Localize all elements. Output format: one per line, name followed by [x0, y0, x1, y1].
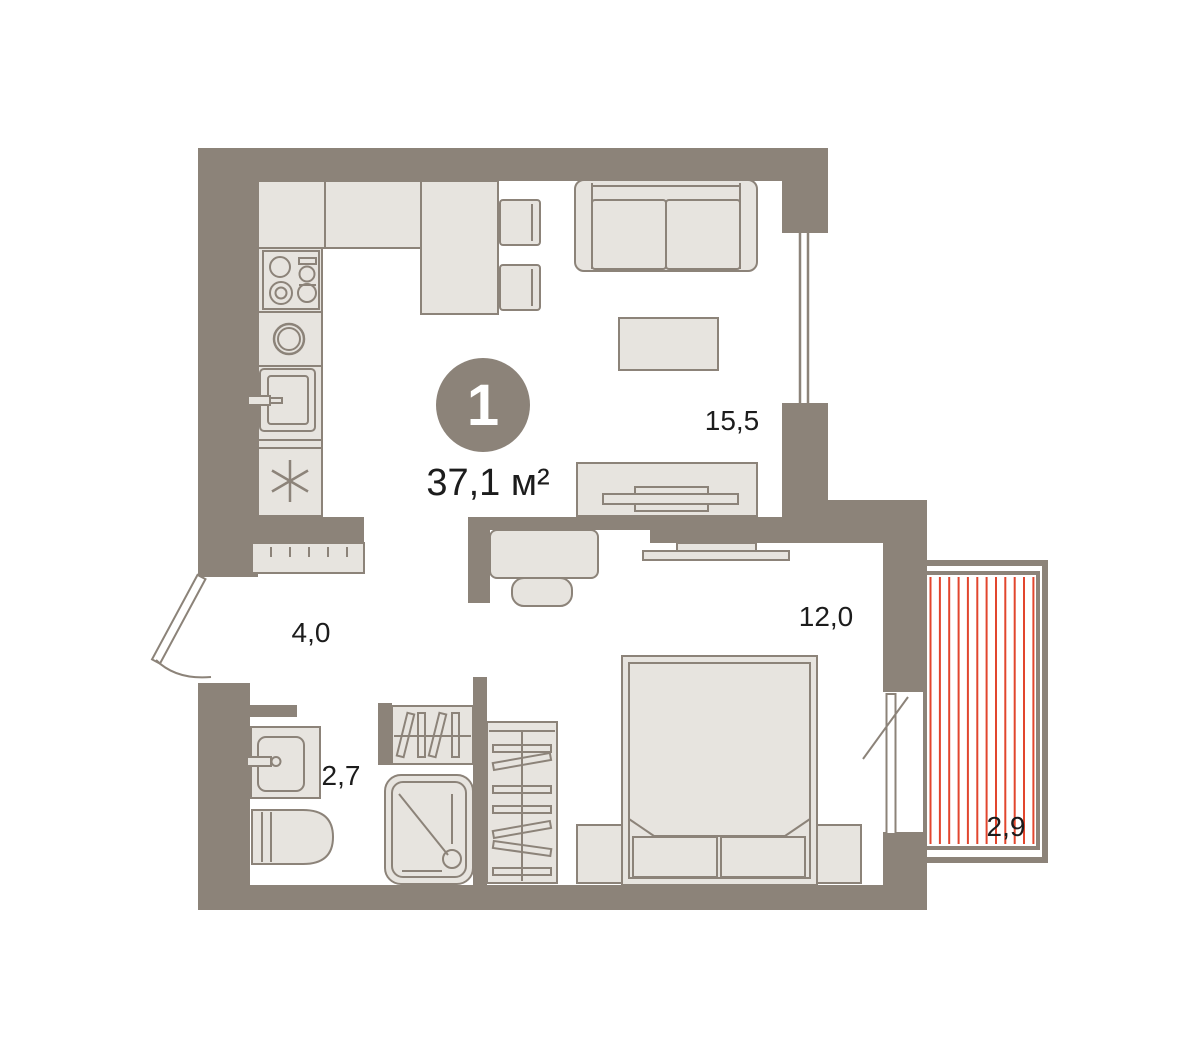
- bed: [622, 656, 817, 885]
- desk-chair: [512, 578, 572, 606]
- wall-left-upper: [198, 148, 258, 577]
- wall-stub-bedroom-left: [468, 517, 490, 603]
- living-room-window: [800, 232, 808, 403]
- toilet-icon: [252, 810, 333, 864]
- tv-icon: [603, 494, 738, 504]
- rooms-count-label: 1: [467, 373, 499, 438]
- bar-stool: [500, 200, 540, 245]
- wall-right-band: [782, 500, 927, 543]
- wall-bedroom-right-upper: [883, 543, 927, 692]
- wall-mid-band: [650, 517, 782, 543]
- room-area-label-hallway: 4,0: [292, 617, 331, 648]
- bathroom-shelf: [392, 706, 473, 764]
- wall-pillar-below-window: [782, 403, 828, 503]
- bedroom-tv-icon: [643, 551, 789, 560]
- room-area-label-bathroom: 2,7: [322, 760, 361, 791]
- tv-stand: [577, 463, 757, 516]
- entry-door-leaf: [152, 575, 205, 664]
- wall-bathroom-strip: [378, 703, 392, 765]
- balcony-floor-outline: [925, 573, 1038, 848]
- kitchen-island: [421, 181, 498, 314]
- shower-icon: [385, 775, 473, 884]
- wall-top: [198, 148, 828, 181]
- room-area-label-balcony: 2,9: [987, 811, 1026, 842]
- floorplan-svg: 1 37,1 м² 15,5 12,0 4,0 2,7 2,9: [0, 0, 1200, 1061]
- living-room: [575, 180, 757, 516]
- entry-door: [152, 575, 211, 678]
- desk: [490, 530, 598, 578]
- wall-kitchen-hall: [198, 517, 364, 543]
- coffee-table: [619, 318, 718, 370]
- nightstand-right: [817, 825, 861, 883]
- room-area-label-living: 15,5: [705, 405, 760, 436]
- room-area-label-bedroom: 12,0: [799, 601, 854, 632]
- pillow: [721, 837, 805, 877]
- hallway: [252, 543, 364, 573]
- bedroom-tv-bracket: [677, 543, 756, 551]
- entry-door-swing-arc: [156, 660, 211, 677]
- balcony-door: [863, 694, 908, 834]
- wall-bottom: [198, 885, 927, 910]
- kitchen-counter-corner: [258, 181, 325, 248]
- bathroom-sink-icon: [247, 727, 320, 798]
- total-area-label: 37,1 м²: [426, 462, 549, 504]
- balcony: [925, 563, 1045, 860]
- wall-partition-bedroom: [468, 517, 650, 530]
- wall-pillar-above-window: [782, 180, 828, 233]
- kitchen-counter-top: [325, 181, 421, 248]
- nightstand-left: [577, 825, 622, 883]
- bathroom: [247, 706, 473, 884]
- wall-bathroom-top-stub: [250, 705, 297, 717]
- pillow: [633, 837, 717, 877]
- wardrobe: [487, 722, 557, 883]
- sofa: [575, 180, 757, 271]
- wall-left-lower: [198, 683, 250, 910]
- coat-rack: [252, 543, 364, 573]
- wall-bathroom-wardrobe-divider: [473, 677, 487, 910]
- floorplan-canvas: 1 37,1 м² 15,5 12,0 4,0 2,7 2,9: [0, 0, 1200, 1061]
- apartment-badge: 1 37,1 м²: [426, 358, 549, 504]
- bar-stool: [500, 265, 540, 310]
